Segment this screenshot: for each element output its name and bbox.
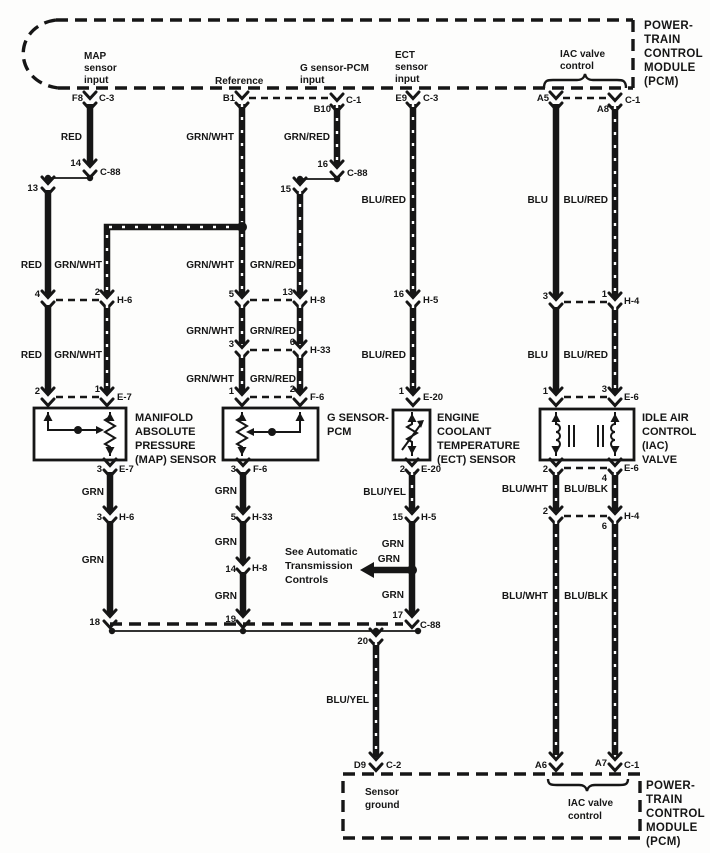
iac-name-2: CONTROL <box>642 426 697 438</box>
wire-label-blu-red: BLU/RED <box>362 350 406 361</box>
terminal-1: 1 <box>543 386 549 397</box>
pcm-top-name-3: CONTROL <box>644 48 703 60</box>
label-sensor-ground-1: Sensor <box>365 787 399 798</box>
pcm-bottom-name-1: POWER- <box>646 780 695 792</box>
terminal-16: 16 <box>393 289 404 300</box>
terminal-3: 3 <box>97 512 102 523</box>
terminal-6: 6 <box>602 521 607 532</box>
terminal-a5: A5 <box>537 93 550 104</box>
pcm-bottom-box: Sensor ground IAC valve control POWER- T… <box>343 774 705 848</box>
terminal-a8: A8 <box>597 104 609 115</box>
terminal-2: 2 <box>543 506 548 517</box>
terminal-5: 5 <box>229 289 235 300</box>
map-name-4: (MAP) SENSOR <box>135 454 216 466</box>
connector-h4: H-4 <box>624 511 640 522</box>
connector-c88: C-88 <box>420 620 441 631</box>
terminal-f8: F8 <box>72 93 83 104</box>
label-sensor-ground-2: ground <box>365 800 399 811</box>
connector-e20: E-20 <box>421 464 441 475</box>
wire-label-red: RED <box>61 132 82 143</box>
map-circuit: RED 14 C-88 13 RED GRN/WHT 4 2 H-6 RED G… <box>21 104 242 406</box>
wire-label-grn-wht: GRN/WHT <box>186 326 234 337</box>
terminal-a7: A7 <box>595 758 607 769</box>
wire-label-grn-wht: GRN/WHT <box>186 132 234 143</box>
terminal-15: 15 <box>280 184 291 195</box>
g-sensor-name-1: G SENSOR- <box>327 412 389 424</box>
terminal-d9: D9 <box>354 760 366 771</box>
terminal-b1: B1 <box>223 93 236 104</box>
wire-label-blu-red: BLU/RED <box>362 195 406 206</box>
pcm-bottom-name-2: TRAIN <box>646 794 683 806</box>
wire-label-blu-wht: BLU/WHT <box>502 484 548 495</box>
map-name-3: PRESSURE <box>135 440 196 452</box>
connector-h8: H-8 <box>252 563 267 574</box>
map-sensor-component: MANIFOLD ABSOLUTE PRESSURE (MAP) SENSOR … <box>34 408 216 477</box>
wire-label-blu-red: BLU/RED <box>564 195 608 206</box>
reference-circuit: GRN/WHT GRN/RED 16 C-88 15 GRN/WHT GRN/R… <box>186 104 367 406</box>
g-sensor-name-2: PCM <box>327 426 351 438</box>
terminal-16: 16 <box>317 159 328 170</box>
terminal-a6: A6 <box>535 760 547 771</box>
wire-label-blu-wht: BLU/WHT <box>502 591 548 602</box>
wire-label-grn-red: GRN/RED <box>250 260 296 271</box>
wire-label-blu-blk: BLU/BLK <box>564 484 609 495</box>
iac-brace-bottom <box>548 779 628 791</box>
terminal-3: 3 <box>231 464 236 475</box>
pcm-bottom-name-4: MODULE <box>646 822 698 834</box>
pcm-top-name-1: POWER- <box>644 20 693 32</box>
iac-lower-paths: BLU/WHT BLU/BLK 2 6 H-4 BLU/WHT BLU/BLK … <box>502 472 640 771</box>
wire-junction <box>407 565 417 575</box>
note-atc-2: Transmission <box>285 560 353 572</box>
connector-h4: H-4 <box>624 296 640 307</box>
terminal-1: 1 <box>229 386 235 397</box>
map-ground-path: GRN 3 H-6 GRN 18 <box>82 472 135 628</box>
pcm-top-box: MAP sensor input Reference G sensor-PCM … <box>23 20 703 88</box>
note-atc-1: See Automatic <box>285 546 358 558</box>
wire-label-grn: GRN <box>82 487 104 498</box>
wire-label-grn: GRN <box>382 539 404 550</box>
label-ect-input-1: ECT <box>395 50 415 61</box>
wire-label-blu-yel: BLU/YEL <box>326 695 369 706</box>
ect-ground-path: BLU/YEL 15 H-5 GRN GRN See Automatic Tra… <box>285 472 437 628</box>
wiring-diagram: MAP sensor input Reference G sensor-PCM … <box>0 0 710 853</box>
connector-f6: F-6 <box>253 464 267 475</box>
note-atc-3: Controls <box>285 574 328 586</box>
terminal-3: 3 <box>229 339 234 350</box>
wiring-diagram-page: MAP sensor input Reference G sensor-PCM … <box>0 0 710 853</box>
terminal-3: 3 <box>602 384 607 395</box>
iac-circuit: BLU BLU/RED 3 1 H-4 BLU BLU/RED 1 3 E-6 <box>527 104 640 406</box>
wire-label-blu-yel: BLU/YEL <box>363 487 406 498</box>
connector-e20: E-20 <box>423 392 443 403</box>
terminal-2: 2 <box>35 386 40 397</box>
connector-e7: E-7 <box>119 464 134 475</box>
connector-c3: C-3 <box>423 93 438 104</box>
connector-c88: C-88 <box>347 168 368 179</box>
connector-h8: H-8 <box>310 295 325 306</box>
iac-brace-top <box>544 74 626 88</box>
iac-name-1: IDLE AIR <box>642 412 689 424</box>
label-map-input-1: MAP <box>84 51 107 62</box>
terminal-2: 2 <box>95 287 100 298</box>
label-ect-input-2: sensor <box>395 62 428 73</box>
ect-name-1: ENGINE <box>437 412 479 424</box>
ect-circuit: BLU/RED 16 H-5 BLU/RED 1 E-20 <box>362 104 444 406</box>
label-iac-control-1: IAC valve <box>560 49 605 60</box>
wire-junction <box>237 222 247 232</box>
terminal-b10: B10 <box>314 104 331 115</box>
ect-sensor-component: ENGINE COOLANT TEMPERATURE (ECT) SENSOR … <box>393 410 520 477</box>
map-name-2: ABSOLUTE <box>135 426 196 438</box>
wire-label-grn-wht: GRN/WHT <box>186 374 234 385</box>
terminal-18: 18 <box>89 617 100 628</box>
label-g-input-2: input <box>300 75 325 86</box>
wire-label-grn: GRN <box>215 537 237 548</box>
connector-h5: H-5 <box>423 295 439 306</box>
pcm-top-name-4: MODULE <box>644 62 696 74</box>
wire-label-grn: GRN <box>382 590 404 601</box>
terminal-4: 4 <box>35 289 41 300</box>
terminal-1: 1 <box>95 384 101 395</box>
terminal-1: 1 <box>602 289 608 300</box>
wire-label-grn: GRN <box>215 486 237 497</box>
wire-label-blu-blk: BLU/BLK <box>564 591 609 602</box>
wire-label-grn-red: GRN/RED <box>284 132 330 143</box>
connector-h6: H-6 <box>119 512 134 523</box>
ect-name-4: (ECT) SENSOR <box>437 454 516 466</box>
pcm-top-name-2: TRAIN <box>644 34 681 46</box>
ground-bus: C-88 20 BLU/YEL D9 C-2 <box>109 620 441 771</box>
connector-h6: H-6 <box>117 295 132 306</box>
terminal-13: 13 <box>27 183 38 194</box>
terminal-2: 2 <box>400 464 405 475</box>
terminal-17: 17 <box>392 610 403 621</box>
wire-label-blu-red: BLU/RED <box>564 350 608 361</box>
connector-f6: F-6 <box>310 392 324 403</box>
atc-arrow <box>360 562 374 578</box>
connector-c88: C-88 <box>100 167 121 178</box>
iac-name-4: VALVE <box>642 454 677 466</box>
ect-name-3: TEMPERATURE <box>437 440 520 452</box>
terminal-15: 15 <box>392 512 403 523</box>
pcm-bottom-name-3: CONTROL <box>646 808 705 820</box>
wire-label-grn: GRN <box>215 591 237 602</box>
g-sensor-ground-path: GRN 5 H-33 GRN 14 H-8 GRN 19 <box>215 472 273 628</box>
terminal-2: 2 <box>543 464 548 475</box>
pcm-bottom-name-5: (PCM) <box>646 836 681 848</box>
wire-label-blu: BLU <box>527 350 548 361</box>
label-map-input-2: sensor <box>84 63 117 74</box>
connector-c1: C-1 <box>624 760 640 771</box>
connector-c2: C-2 <box>386 760 401 771</box>
terminal-3: 3 <box>97 464 102 475</box>
connector-c3: C-3 <box>99 93 114 104</box>
label-iac-control-2: control <box>560 61 594 72</box>
pcm-top-name-5: (PCM) <box>644 76 679 88</box>
terminal-1: 1 <box>399 386 405 397</box>
terminal-4: 4 <box>602 473 608 484</box>
connector-e6: E-6 <box>624 392 639 403</box>
terminal-20: 20 <box>357 636 368 647</box>
label-iac-control-bottom-1: IAC valve <box>568 798 613 809</box>
ect-name-2: COOLANT <box>437 426 492 438</box>
terminal-3: 3 <box>543 291 548 302</box>
iac-name-3: (IAC) <box>642 440 669 452</box>
terminal-14: 14 <box>225 564 236 575</box>
terminal-14: 14 <box>70 158 81 169</box>
wire-label-blu: BLU <box>527 195 548 206</box>
wire-label-grn-wht: GRN/WHT <box>186 260 234 271</box>
connector-e6: E-6 <box>624 463 639 474</box>
wire-label-red: RED <box>21 350 42 361</box>
iac-valve-component: IDLE AIR CONTROL (IAC) VALVE 2 4 E-6 <box>540 409 697 484</box>
connector-c1: C-1 <box>346 95 362 106</box>
g-sensor-component: G SENSOR- PCM 3 F-6 <box>223 408 389 477</box>
label-g-input-1: G sensor-PCM <box>300 63 369 74</box>
map-name-1: MANIFOLD <box>135 412 193 424</box>
wire-label-grn-wht: GRN/WHT <box>54 350 102 361</box>
label-iac-control-bottom-2: control <box>568 811 602 822</box>
terminal-e9: E9 <box>395 93 407 104</box>
wire-label-grn-red: GRN/RED <box>250 326 296 337</box>
connector-h33: H-33 <box>252 512 273 523</box>
label-reference: Reference <box>215 76 264 87</box>
wire-label-red: RED <box>21 260 42 271</box>
wire-label-grn: GRN <box>82 555 104 566</box>
connector-h5: H-5 <box>421 512 437 523</box>
label-map-input-3: input <box>84 75 109 86</box>
connector-h33: H-33 <box>310 345 331 356</box>
wire-label-grn-wht: GRN/WHT <box>54 260 102 271</box>
label-ect-input-3: input <box>395 74 420 85</box>
connector-c1: C-1 <box>625 95 641 106</box>
connector-e7: E-7 <box>117 392 132 403</box>
terminal-13: 13 <box>282 287 293 298</box>
wire-label-grn: GRN <box>378 554 400 565</box>
